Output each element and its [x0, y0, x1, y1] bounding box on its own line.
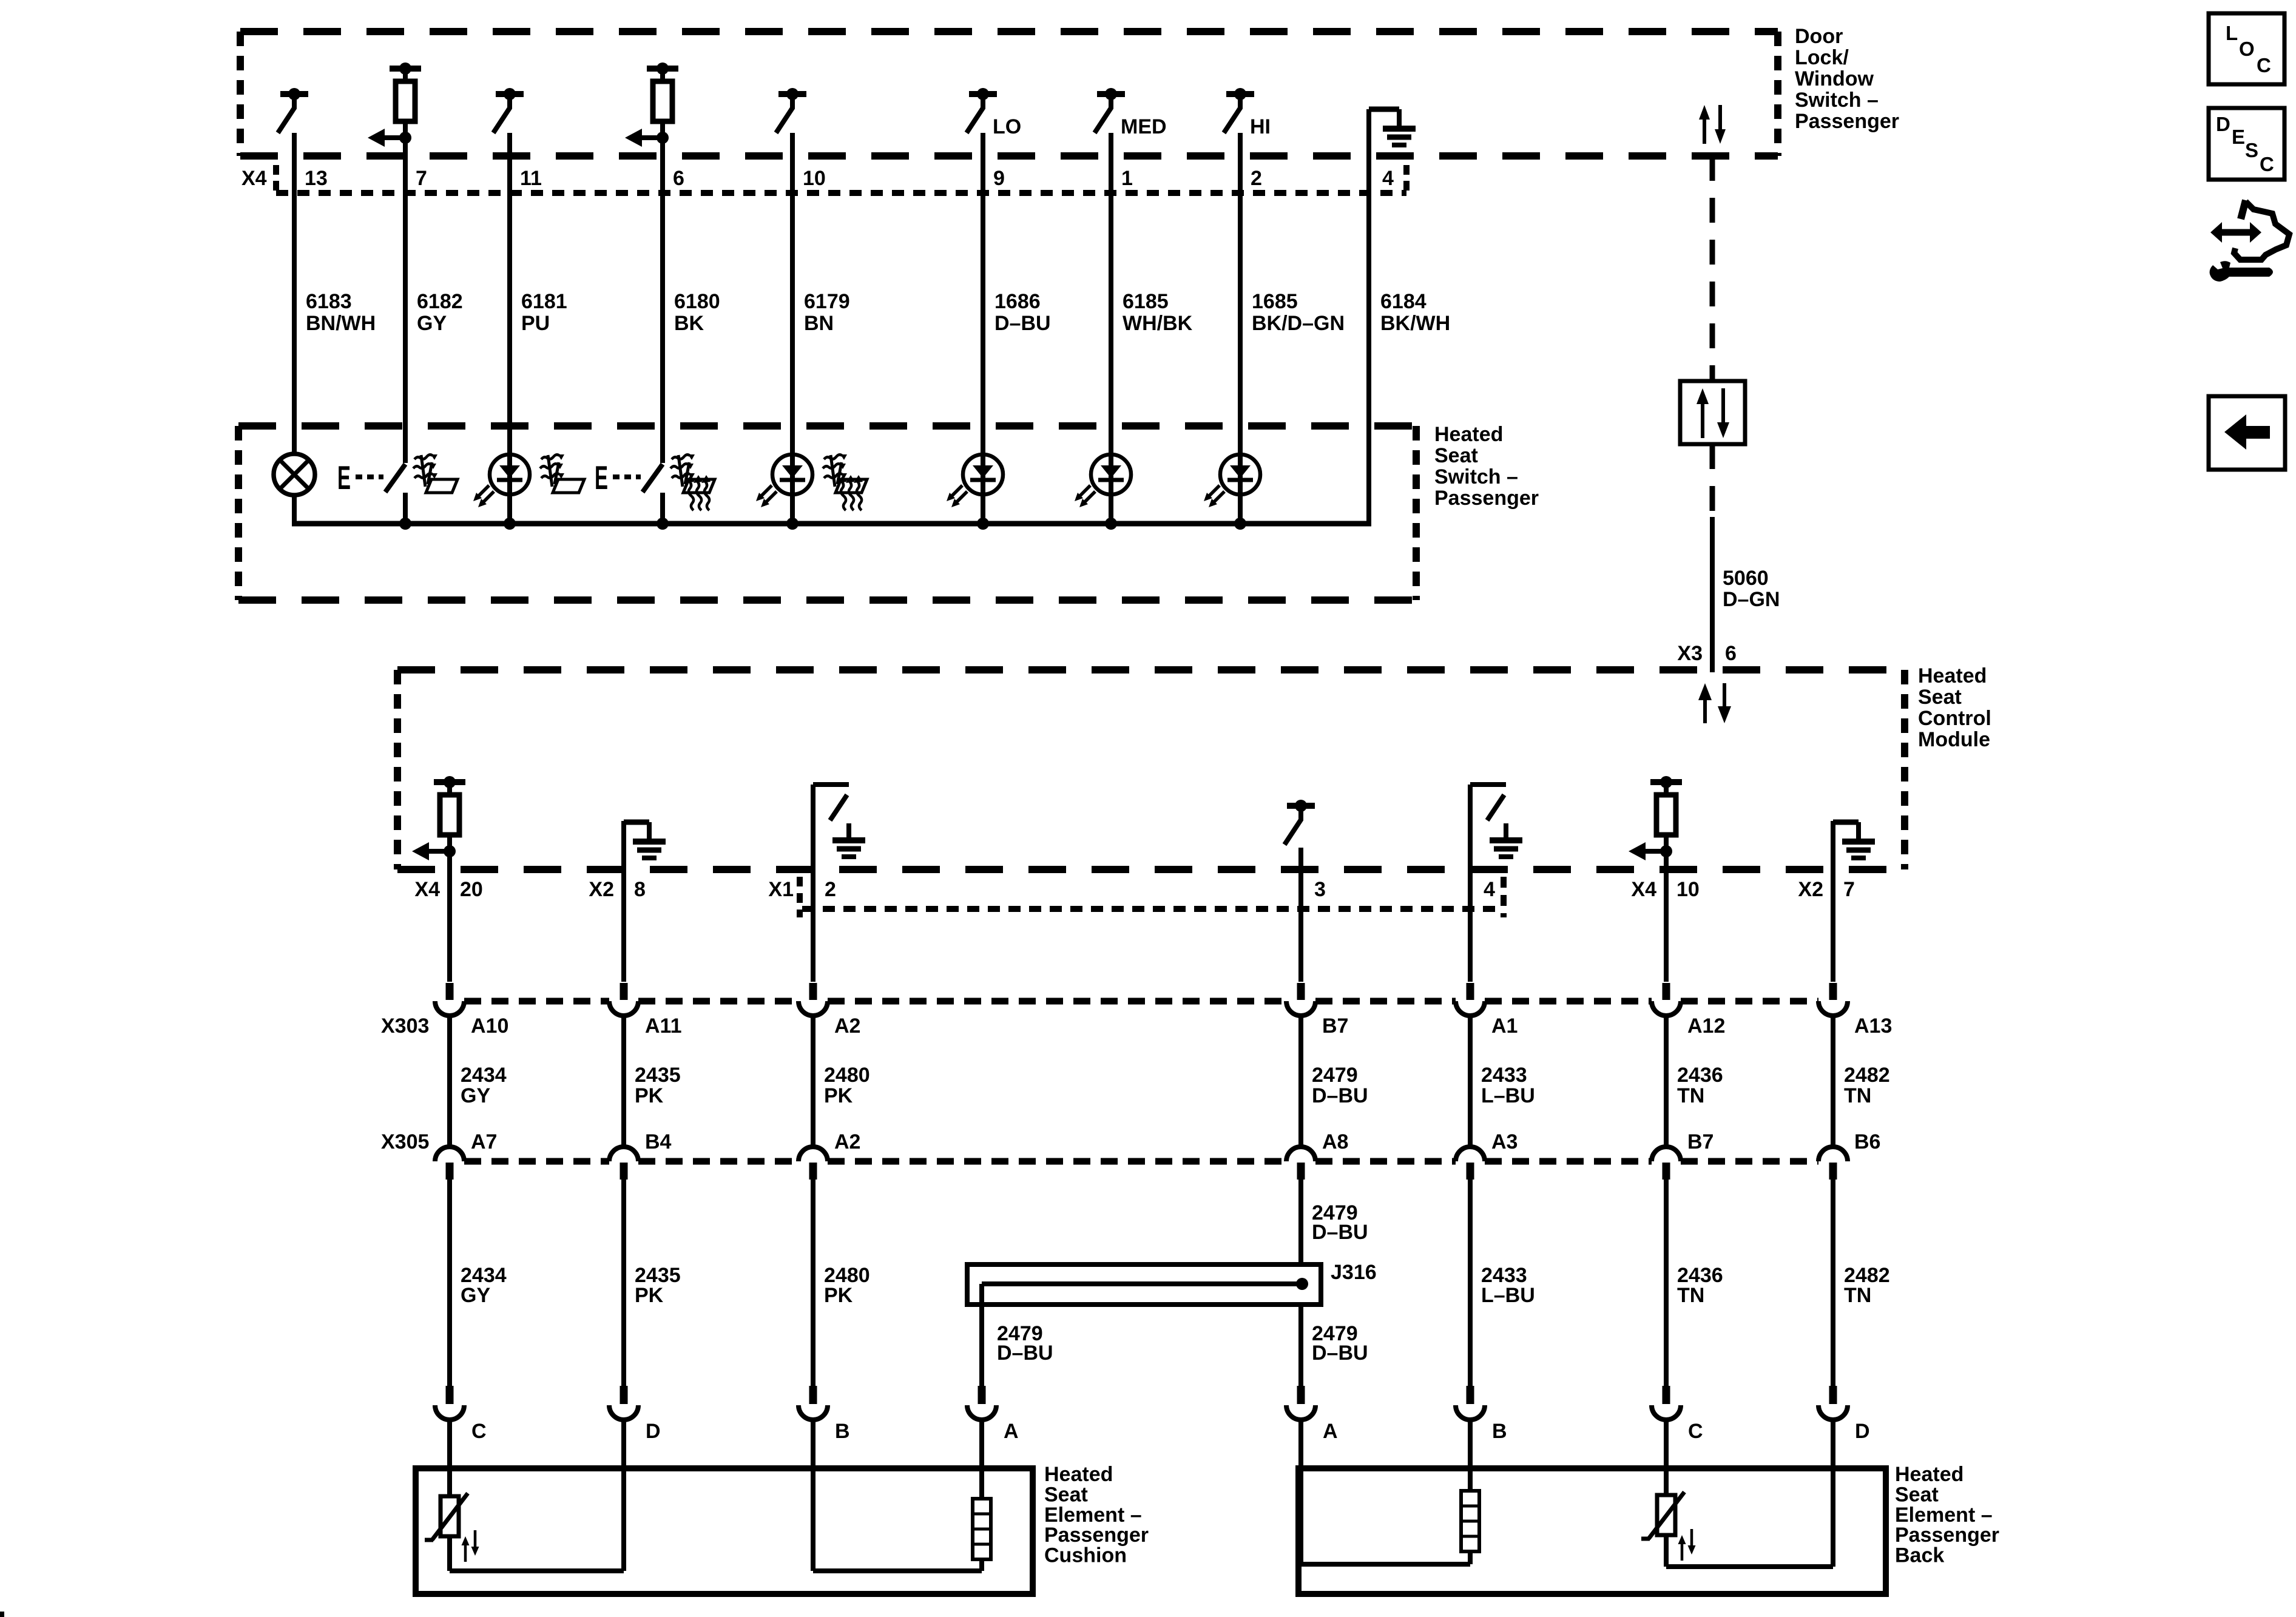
- svg-text:6: 6: [1725, 642, 1737, 665]
- svg-text:Seat: Seat: [1895, 1483, 1939, 1506]
- svg-text:X305: X305: [381, 1130, 429, 1153]
- svg-text:3: 3: [1314, 878, 1326, 901]
- svg-text:2479: 2479: [1312, 1064, 1358, 1087]
- svg-text:Passenger: Passenger: [1434, 487, 1539, 510]
- svg-text:L–BU: L–BU: [1481, 1084, 1535, 1107]
- svg-text:7: 7: [416, 167, 427, 190]
- svg-text:Door: Door: [1795, 25, 1843, 48]
- svg-text:BN: BN: [804, 312, 834, 335]
- svg-text:GY: GY: [417, 312, 447, 335]
- svg-text:Heated: Heated: [1434, 423, 1503, 446]
- svg-text:Passenger: Passenger: [1795, 110, 1899, 133]
- svg-text:PK: PK: [824, 1284, 853, 1307]
- svg-text:D–BU: D–BU: [994, 312, 1051, 335]
- svg-text:B4: B4: [645, 1130, 672, 1153]
- svg-text:B: B: [1492, 1420, 1507, 1443]
- svg-text:6182: 6182: [417, 290, 463, 313]
- svg-text:TN: TN: [1844, 1084, 1871, 1107]
- svg-text:A11: A11: [645, 1014, 682, 1038]
- svg-text:C: C: [2257, 54, 2271, 76]
- svg-text:A2: A2: [834, 1014, 860, 1038]
- svg-text:PK: PK: [635, 1284, 664, 1307]
- svg-text:6: 6: [673, 167, 684, 190]
- svg-text:2436: 2436: [1677, 1064, 1723, 1087]
- svg-text:TN: TN: [1677, 1084, 1704, 1107]
- svg-text:D: D: [1855, 1420, 1870, 1443]
- svg-text:Module: Module: [1918, 728, 1990, 751]
- svg-text:C: C: [1688, 1420, 1703, 1443]
- svg-text:C: C: [2260, 153, 2274, 175]
- svg-text:LO: LO: [993, 115, 1021, 138]
- svg-text:WH/BK: WH/BK: [1123, 312, 1193, 335]
- svg-text:BK: BK: [674, 312, 704, 335]
- svg-text:Switch –: Switch –: [1434, 465, 1518, 488]
- svg-text:10: 10: [803, 167, 826, 190]
- svg-text:11: 11: [520, 167, 542, 190]
- svg-text:S: S: [2245, 139, 2258, 161]
- svg-text:6179: 6179: [804, 290, 850, 313]
- svg-text:10: 10: [1676, 878, 1700, 901]
- svg-text:PK: PK: [824, 1084, 853, 1107]
- svg-text:D: D: [2216, 113, 2230, 135]
- svg-text:Control: Control: [1918, 707, 1991, 730]
- svg-text:A13: A13: [1854, 1014, 1892, 1038]
- svg-text:Heated: Heated: [1918, 664, 1987, 687]
- svg-text:GY: GY: [461, 1284, 490, 1307]
- svg-text:D–BU: D–BU: [1312, 1221, 1368, 1244]
- svg-text:A10: A10: [471, 1014, 508, 1038]
- svg-text:1: 1: [1121, 167, 1133, 190]
- svg-text:GY: GY: [461, 1084, 490, 1107]
- svg-text:6181: 6181: [521, 290, 567, 313]
- svg-text:6180: 6180: [674, 290, 720, 313]
- svg-text:D–BU: D–BU: [997, 1342, 1053, 1365]
- svg-text:B7: B7: [1687, 1130, 1714, 1153]
- svg-text:HI: HI: [1250, 115, 1271, 138]
- svg-text:Element –: Element –: [1895, 1504, 1993, 1527]
- svg-text:E: E: [595, 459, 608, 496]
- svg-text:BK/WH: BK/WH: [1380, 312, 1450, 335]
- svg-text:4: 4: [1382, 167, 1394, 190]
- svg-text:C: C: [471, 1420, 487, 1443]
- svg-text:E: E: [337, 459, 351, 496]
- svg-text:1686: 1686: [994, 290, 1041, 313]
- svg-text:Element –: Element –: [1044, 1504, 1142, 1527]
- svg-text:2480: 2480: [824, 1064, 870, 1087]
- svg-text:13: 13: [305, 167, 328, 190]
- svg-text:B7: B7: [1322, 1014, 1348, 1038]
- svg-text:6184: 6184: [1380, 290, 1427, 313]
- svg-text:Passenger: Passenger: [1044, 1524, 1149, 1547]
- svg-text:5060: 5060: [1723, 567, 1769, 590]
- svg-text:X4: X4: [1631, 878, 1656, 901]
- svg-text:TN: TN: [1844, 1284, 1871, 1307]
- svg-text:B6: B6: [1854, 1130, 1880, 1153]
- svg-text:2435: 2435: [635, 1064, 681, 1087]
- svg-text:Heated: Heated: [1044, 1463, 1113, 1486]
- svg-text:Back: Back: [1895, 1544, 1944, 1567]
- svg-text:PU: PU: [521, 312, 550, 335]
- svg-text:J316: J316: [1331, 1261, 1377, 1284]
- svg-text:A8: A8: [1322, 1130, 1348, 1153]
- svg-text:9: 9: [993, 167, 1005, 190]
- svg-text:X4: X4: [414, 878, 440, 901]
- svg-text:X4: X4: [241, 167, 267, 190]
- svg-text:A12: A12: [1687, 1014, 1725, 1038]
- svg-text:A: A: [1004, 1420, 1019, 1443]
- svg-text:2482: 2482: [1844, 1064, 1890, 1087]
- svg-text:Switch –: Switch –: [1795, 89, 1879, 112]
- svg-text:TN: TN: [1677, 1284, 1704, 1307]
- svg-text:2433: 2433: [1481, 1064, 1527, 1087]
- svg-text:A1: A1: [1491, 1014, 1518, 1038]
- svg-text:X3: X3: [1677, 642, 1703, 665]
- svg-text:1685: 1685: [1252, 290, 1298, 313]
- svg-text:L–BU: L–BU: [1481, 1284, 1535, 1307]
- svg-text:X2: X2: [1798, 878, 1823, 901]
- svg-text:D–BU: D–BU: [1312, 1342, 1368, 1365]
- svg-text:A2: A2: [834, 1130, 860, 1153]
- svg-text:D–BU: D–BU: [1312, 1084, 1368, 1107]
- svg-text:Seat: Seat: [1044, 1483, 1088, 1506]
- svg-text:7: 7: [1843, 878, 1855, 901]
- svg-text:2434: 2434: [461, 1064, 507, 1087]
- svg-text:A3: A3: [1491, 1130, 1518, 1153]
- svg-text:X303: X303: [381, 1014, 429, 1038]
- svg-text:Cushion: Cushion: [1044, 1544, 1127, 1567]
- svg-text:6185: 6185: [1123, 290, 1169, 313]
- svg-text:4: 4: [1484, 878, 1495, 901]
- svg-text:X2: X2: [589, 878, 614, 901]
- svg-text:Lock/: Lock/: [1795, 46, 1849, 69]
- svg-text:D: D: [646, 1420, 661, 1443]
- svg-text:2: 2: [1251, 167, 1262, 190]
- svg-text:B: B: [835, 1420, 850, 1443]
- svg-text:D–GN: D–GN: [1723, 588, 1780, 611]
- svg-text:6183: 6183: [306, 290, 352, 313]
- svg-text:20: 20: [460, 878, 483, 901]
- svg-text:8: 8: [634, 878, 646, 901]
- svg-text:2: 2: [825, 878, 836, 901]
- svg-text:Passenger: Passenger: [1895, 1524, 1999, 1547]
- svg-text:L: L: [2226, 22, 2238, 44]
- svg-text:Window: Window: [1795, 67, 1874, 90]
- svg-text:BN/WH: BN/WH: [306, 312, 376, 335]
- svg-text:Seat: Seat: [1918, 686, 1962, 709]
- svg-text:A7: A7: [471, 1130, 497, 1153]
- svg-text:Seat: Seat: [1434, 444, 1478, 467]
- svg-text:MED: MED: [1121, 115, 1167, 138]
- svg-text:Heated: Heated: [1895, 1463, 1963, 1486]
- svg-text:O: O: [2239, 38, 2255, 60]
- svg-text:PK: PK: [635, 1084, 664, 1107]
- svg-text:X1: X1: [768, 878, 794, 901]
- svg-text:E: E: [2232, 126, 2245, 148]
- svg-text:BK/D–GN: BK/D–GN: [1252, 312, 1345, 335]
- svg-text:A: A: [1323, 1420, 1338, 1443]
